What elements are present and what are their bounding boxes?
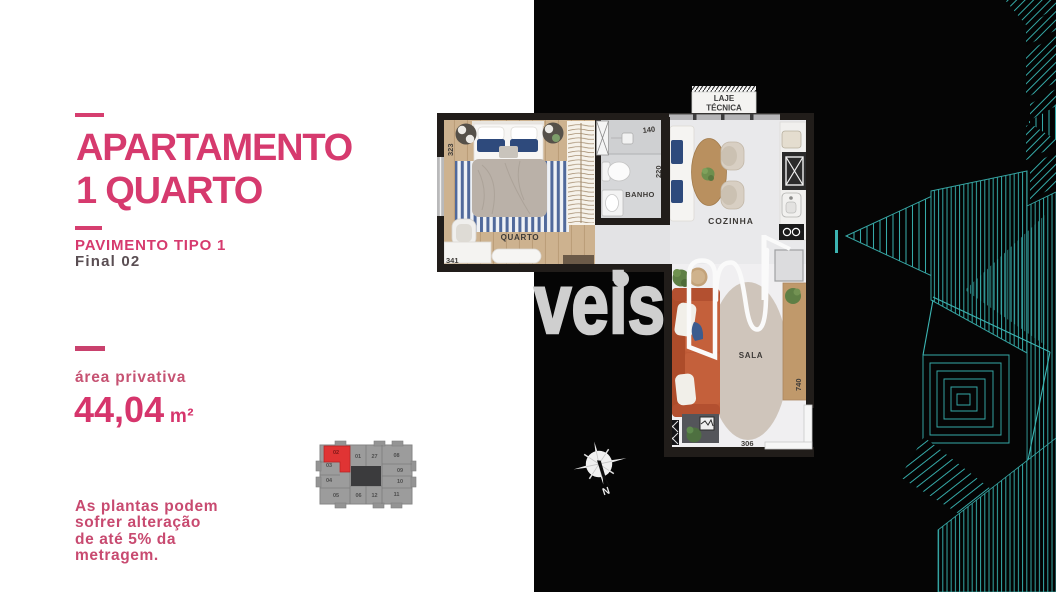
svg-text:11: 11 (394, 492, 400, 498)
svg-text:QUARTO: QUARTO (501, 233, 540, 242)
svg-text:BANHO: BANHO (625, 190, 655, 199)
svg-text:COZINHA: COZINHA (708, 216, 754, 226)
svg-text:03: 03 (326, 463, 332, 469)
svg-text:06: 06 (355, 493, 361, 499)
svg-text:27: 27 (371, 454, 377, 460)
svg-text:140: 140 (642, 125, 656, 135)
svg-text:740: 740 (794, 378, 803, 391)
svg-text:306: 306 (741, 439, 754, 448)
svg-text:01: 01 (355, 454, 361, 460)
svg-text:12: 12 (371, 493, 377, 499)
svg-text:N: N (601, 486, 611, 499)
svg-text:341: 341 (446, 256, 459, 265)
svg-text:323: 323 (446, 143, 455, 156)
svg-text:10: 10 (397, 479, 403, 485)
svg-text:SALA: SALA (739, 351, 764, 360)
svg-text:05: 05 (333, 493, 339, 499)
svg-text:08: 08 (393, 453, 399, 459)
svg-text:TÉCNICA: TÉCNICA (706, 104, 742, 113)
svg-text:02: 02 (333, 450, 339, 456)
svg-text:veis: veis (534, 257, 665, 352)
svg-text:09: 09 (397, 468, 403, 474)
svg-text:04: 04 (326, 478, 333, 484)
svg-text:LAJE: LAJE (714, 94, 735, 103)
